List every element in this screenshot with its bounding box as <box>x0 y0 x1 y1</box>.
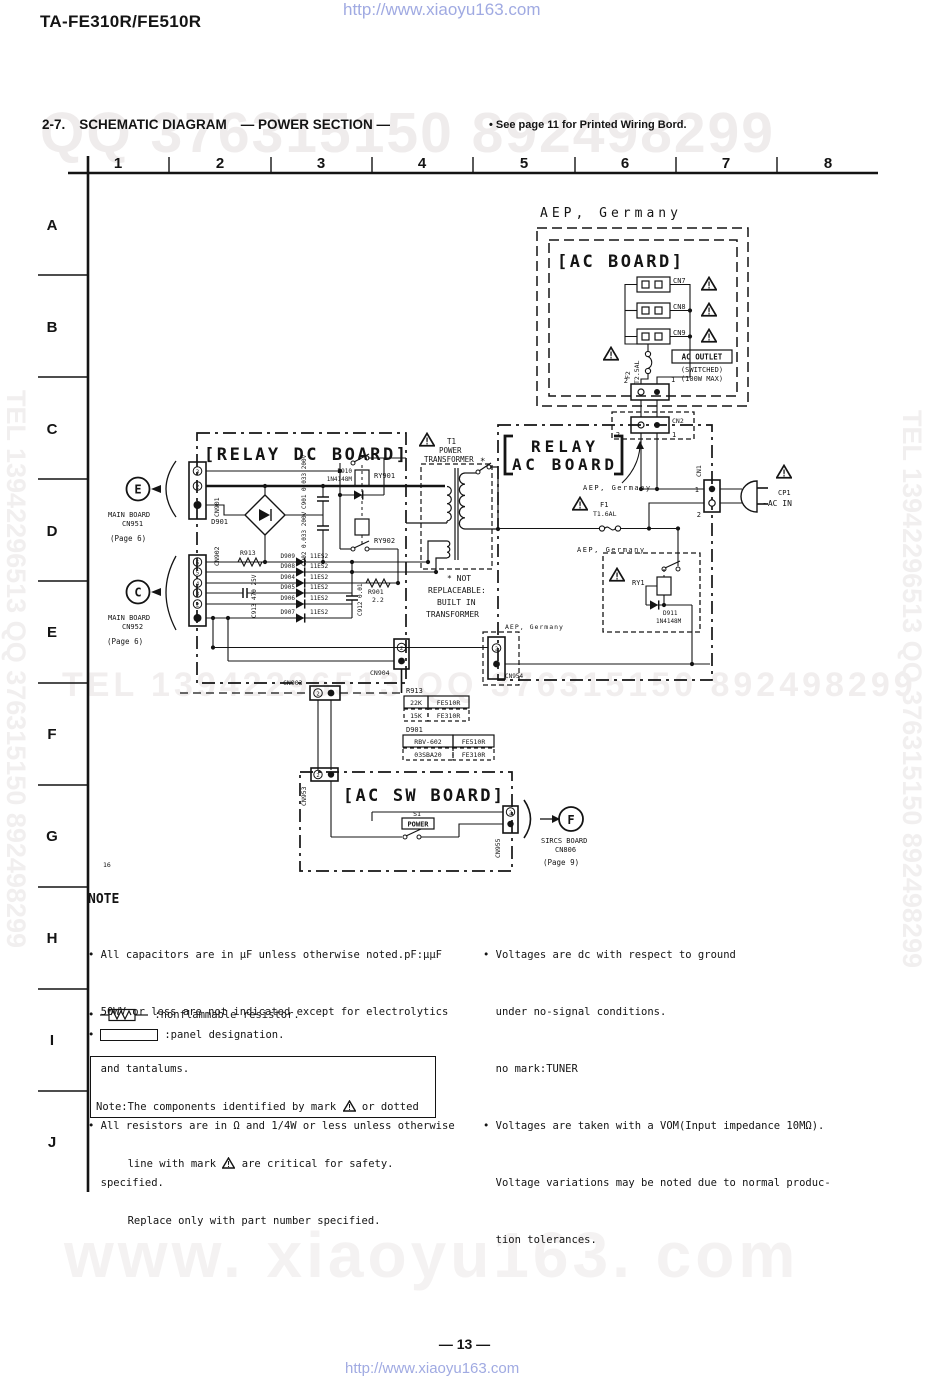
safety-text: Note:The components identified by mark <box>96 1101 343 1113</box>
r913-fe510r: FE510R <box>437 699 461 707</box>
ry902-label: RY902 <box>374 537 395 545</box>
panel-designation-icon <box>100 1029 158 1041</box>
d910-type-label: 1N4148M <box>327 476 353 483</box>
relay-ac-title-2: AC BOARD <box>512 455 614 474</box>
pin-2-label: 2 <box>509 811 512 817</box>
cn954-label: CN954 <box>505 673 523 680</box>
r913-15k: 15K <box>410 712 422 720</box>
t1-transformer-label: TRANSFORMER <box>424 455 474 464</box>
grid-col: 2 <box>216 155 224 172</box>
r913-table-label: R913 <box>406 687 423 695</box>
ref-f-label: F <box>567 813 574 827</box>
cn903-label: CN903 <box>283 679 303 687</box>
d901-fe510r: FE510R <box>462 738 486 746</box>
diode-type-label: 11ES2 <box>310 553 328 560</box>
nonflammable-resistor-icon <box>100 1008 148 1022</box>
ac-outlet-label: AC OUTLET <box>682 353 723 362</box>
warning-triangle-icon <box>702 277 717 291</box>
ac-sw-board: [AC SW BOARD] 2 CN953 S1 POWER 2 <box>300 768 587 871</box>
cn2-label: CN2 <box>672 417 684 425</box>
c901-label: C901 0.033 200V <box>301 454 308 509</box>
d905-label: D905 <box>281 584 296 591</box>
r901-value: 2.2 <box>372 596 384 604</box>
sircs-board-label: SIRCS BOARD <box>541 837 587 845</box>
cn8-label: CN8 <box>673 303 686 311</box>
pin-2-label: 2 <box>400 646 403 652</box>
warning-triangle-icon <box>573 497 588 511</box>
diode-icon <box>296 588 305 597</box>
d901-03sba20: 03SBA20 <box>414 751 441 759</box>
cn953-label: CN953 <box>300 786 308 806</box>
diode-type-label: 11ES2 <box>310 574 328 581</box>
aep-germany-label: AEP, Germany <box>505 623 564 631</box>
power-switch-label: POWER <box>407 821 429 829</box>
not-replaceable-1: * NOT <box>447 574 471 583</box>
d908-label: D908 <box>281 563 296 570</box>
pin-2-label: 2 <box>196 485 199 491</box>
c913-label: C913 470 25V <box>251 574 258 618</box>
note-line: :panel designation. <box>164 1029 284 1041</box>
warning-triangle-icon <box>702 303 717 317</box>
grid-col: 4 <box>418 155 427 172</box>
grid-row: H <box>47 930 58 947</box>
d906-label: D906 <box>281 595 296 602</box>
c912-label: C912 0.01 <box>357 583 364 616</box>
warning-triangle-icon <box>702 329 717 343</box>
d901-label: D901 <box>211 518 228 526</box>
r901-label: R901 <box>368 588 384 596</box>
cn952-label: CN952 <box>122 623 143 631</box>
warning-triangle-icon: ! <box>343 1100 356 1112</box>
ac-board-title: [AC BOARD] <box>557 252 682 272</box>
note-line: tion tolerances. <box>483 1231 831 1250</box>
note-line: under no-signal conditions. <box>483 1003 831 1022</box>
grid-col: 7 <box>722 155 730 172</box>
warning-triangle-icon <box>420 433 435 447</box>
grid-col: 1 <box>114 155 122 172</box>
note-heading: NOTE <box>88 892 119 907</box>
cn904-label: CN904 <box>370 669 390 677</box>
cn902-label: CN902 <box>213 546 221 566</box>
cn7-label: CN7 <box>673 277 686 285</box>
d901-rbv602: RBV-602 <box>414 738 441 746</box>
asterisk-label: * <box>480 457 485 467</box>
warning-triangle-icon: ! <box>222 1157 235 1169</box>
f1-label: F1 <box>600 501 608 509</box>
warning-triangle-icon <box>604 347 619 361</box>
warning-triangle-icon <box>777 465 792 479</box>
f1-rating-label: T1.6AL <box>593 510 617 518</box>
ac-switched-label: (SWITCHED) <box>681 366 723 374</box>
pin-2-label: 2 <box>697 511 701 519</box>
d904-label: D904 <box>281 574 296 581</box>
not-replaceable-2: REPLACEABLE: <box>428 586 486 595</box>
grid-row: I <box>50 1032 54 1049</box>
grid-row: B <box>47 319 58 336</box>
main-board-label: MAIN BOARD <box>108 614 150 622</box>
cp1-label: CP1 <box>778 489 791 497</box>
d901-table-label: D901 <box>406 726 423 734</box>
pin-1-label: 1 <box>672 431 676 439</box>
pin-1-label: 1 <box>695 486 699 494</box>
grid-row: C <box>47 421 58 438</box>
grid-col: 3 <box>317 155 325 172</box>
aep-germany-label: AEP, Germany <box>540 206 682 221</box>
power-transformer: T1 POWER TRANSFORMER * * NOT <box>406 433 500 619</box>
d907-label: D907 <box>281 609 296 616</box>
manual-page: http://www.xiaoyu163.com QQ 376315150 89… <box>0 0 929 1383</box>
d911-type-label: 1N4148M <box>656 618 682 625</box>
diode-type-label: 11ES2 <box>310 595 328 602</box>
diode-icon <box>354 490 363 499</box>
grid-col: 8 <box>824 155 832 172</box>
cn955-label: CN955 <box>494 838 502 858</box>
t1-power-label: POWER <box>439 446 462 455</box>
diode-type-label: 11ES2 <box>310 584 328 591</box>
grid-row: A <box>47 217 58 234</box>
d911-label: D911 <box>663 610 678 617</box>
ac-max-label: (100W MAX) <box>681 375 723 383</box>
cn901-label: CN901 <box>213 497 221 517</box>
not-replaceable-4: TRANSFORMER <box>426 610 479 619</box>
pin-2-label: 2 <box>624 377 628 385</box>
diode-type-label: 11ES2 <box>310 609 328 616</box>
svg-text:!: ! <box>227 1160 232 1169</box>
d901-fe310r: FE310R <box>462 751 486 759</box>
main-board-label: MAIN BOARD <box>108 511 150 519</box>
d909-label: D909 <box>281 553 296 560</box>
f2-rating-label: T2.5AL <box>633 360 641 384</box>
relay-ac-title-1: RELAY <box>531 437 595 456</box>
note-line: • All capacitors are in µF unless otherw… <box>88 946 455 965</box>
r913-22k: 22K <box>410 699 422 707</box>
note-line: :nonflammable resistor. <box>154 1009 299 1021</box>
t1-label: T1 <box>447 437 456 446</box>
diode-icon <box>296 578 305 587</box>
grid-col: 6 <box>621 155 629 172</box>
diode-icon <box>296 599 305 608</box>
r913-fe310r: FE310R <box>437 712 461 720</box>
page6-label: (Page 6) <box>107 637 143 646</box>
note-line: • Voltages are dc with respect to ground <box>483 946 831 965</box>
s1-label: S1 <box>413 810 421 818</box>
note-line: Voltage variations may be noted due to n… <box>483 1174 831 1193</box>
ref-e-label: E <box>134 483 141 497</box>
ry901-label: RY901 <box>374 472 395 480</box>
diode-icon <box>650 600 659 609</box>
bullet: • <box>88 1029 94 1041</box>
interconnect: 2 CN904 2 CN903 R913 22K FE510R 15K FE31… <box>103 639 494 869</box>
page6-label: (Page 6) <box>110 534 146 543</box>
ac-in-label: ~AC IN <box>763 499 792 508</box>
pin-2-label: 2 <box>316 773 319 779</box>
note-line: no mark:TUNER <box>483 1060 831 1079</box>
note-line: • Voltages are taken with a VOM(Input im… <box>483 1117 831 1136</box>
bullet: • <box>88 1009 94 1021</box>
safety-text: Replace only with part number specified. <box>96 1212 430 1231</box>
safety-text: or dotted <box>356 1101 419 1113</box>
panel-designation-note: • :panel designation. <box>88 1029 284 1041</box>
ref-16-label: 16 <box>103 861 111 869</box>
pin-3-label: 3 <box>196 592 199 598</box>
ac-sw-board-title: [AC SW BOARD] <box>343 786 503 806</box>
diode-icon <box>296 567 305 576</box>
not-replaceable-3: BUILT IN <box>437 598 476 607</box>
pin-5-label: 5 <box>196 571 199 577</box>
pin-2-label: 2 <box>196 603 199 609</box>
grid-row: G <box>46 828 58 845</box>
cn1-label: CN1 <box>695 465 703 477</box>
safety-text: are critical for safety. <box>235 1158 393 1170</box>
ry1-label: RY1 <box>632 579 645 587</box>
pin-6-label: 6 <box>196 561 199 567</box>
grid-row: D <box>47 523 58 540</box>
nonflammable-note: • :nonflammable resistor. <box>88 1008 300 1022</box>
grid-row: F <box>47 726 56 743</box>
cn951-label: CN951 <box>122 520 143 528</box>
cn9-label: CN9 <box>673 329 686 337</box>
svg-text:!: ! <box>347 1103 352 1112</box>
pin-2-label: 2 <box>495 647 498 653</box>
pin-3-label: 3 <box>196 470 199 476</box>
diode-icon <box>296 613 305 622</box>
pin-1-label: 1 <box>671 376 675 384</box>
note-right-column: • Voltages are dc with respect to ground… <box>483 908 831 1288</box>
grid-row: E <box>47 624 57 641</box>
diode-type-label: 11ES2 <box>310 563 328 570</box>
safety-text: line with mark <box>96 1158 222 1170</box>
page-number: — 13 — <box>0 1336 929 1352</box>
r913-label: R913 <box>240 549 256 557</box>
safety-note-box: Note:The components identified by mark !… <box>90 1056 436 1118</box>
pin-2-label: 2 <box>316 692 319 698</box>
page9-label: (Page 9) <box>543 858 579 867</box>
grid-row: J <box>48 1134 56 1151</box>
cn806-label: CN806 <box>555 846 576 854</box>
cn2-connector: CN2 2 1 <box>612 412 694 489</box>
warning-triangle-icon <box>610 568 625 582</box>
ref-c-label: C <box>134 586 141 600</box>
ac-board: AEP, Germany [AC BOARD] CN7 CN8 CN9 <box>537 206 748 417</box>
grid-col: 5 <box>520 155 528 172</box>
